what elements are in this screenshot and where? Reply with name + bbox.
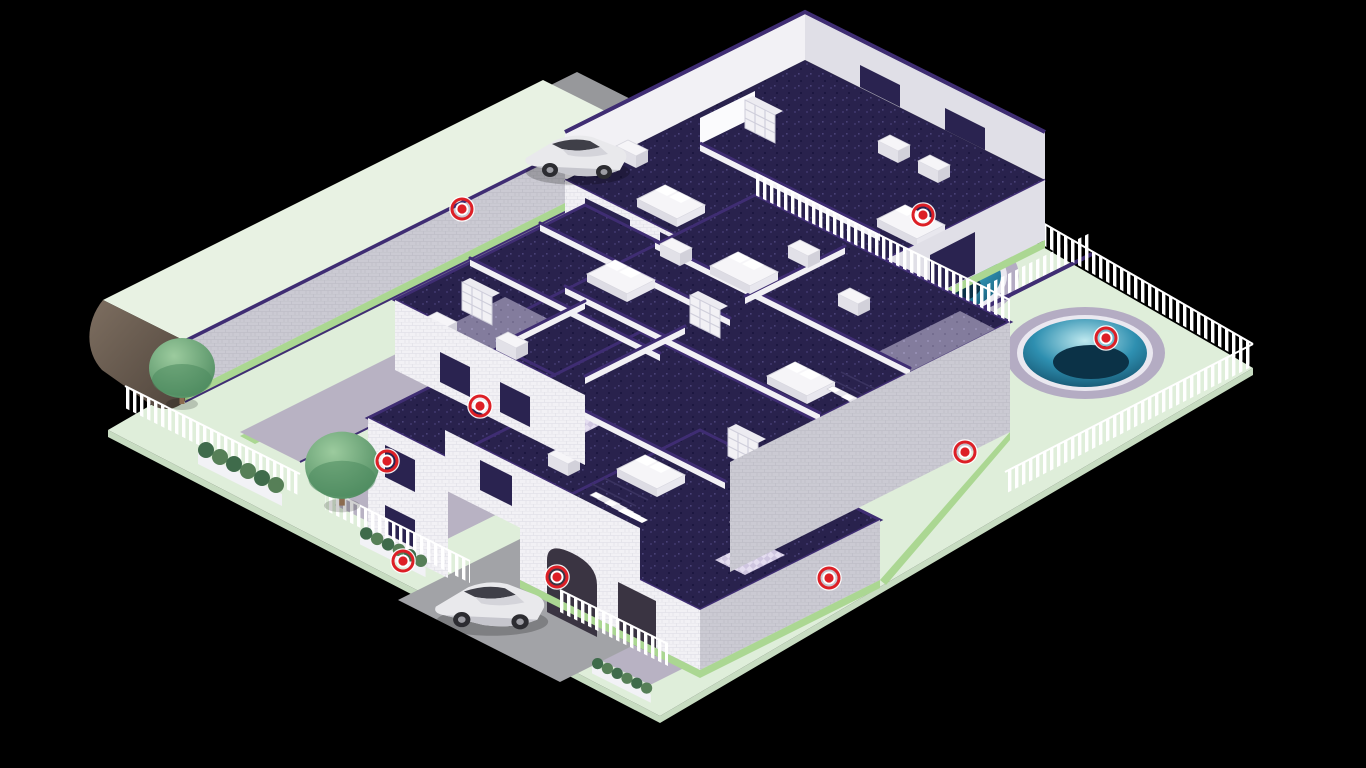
scene-canvas: [0, 0, 1366, 768]
pool-2: [1005, 307, 1165, 399]
isometric-property-scene: [0, 0, 1366, 768]
